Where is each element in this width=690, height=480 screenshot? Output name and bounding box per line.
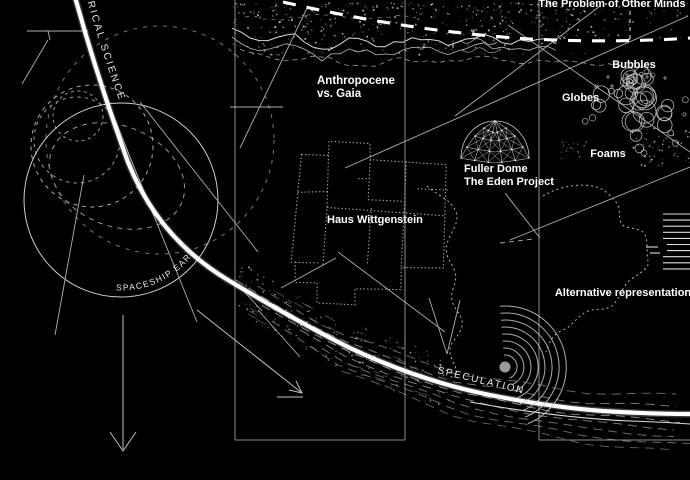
decorative-mark xyxy=(364,6,365,7)
decorative-mark xyxy=(501,151,516,160)
decorative-mark xyxy=(335,324,336,325)
decorative-mark xyxy=(682,97,688,103)
decorative-mark xyxy=(251,281,252,282)
decorative-mark xyxy=(427,5,428,6)
decorative-mark xyxy=(499,49,501,51)
decorative-mark xyxy=(487,11,488,12)
decorative-mark xyxy=(568,144,569,145)
decorative-mark xyxy=(362,31,363,32)
decorative-mark xyxy=(467,147,523,152)
decorative-mark xyxy=(477,149,479,151)
decorative-mark xyxy=(330,25,332,27)
alternative-representation-label: Alternative representation xyxy=(555,287,690,299)
decorative-mark xyxy=(294,25,296,27)
decorative-mark xyxy=(671,29,672,30)
decorative-mark xyxy=(482,138,484,140)
decorative-mark xyxy=(269,31,270,32)
decorative-mark xyxy=(291,19,293,21)
decorative-mark xyxy=(253,11,254,12)
decorative-mark xyxy=(373,342,374,343)
decorative-mark xyxy=(288,20,289,21)
decorative-mark xyxy=(380,24,381,25)
decorative-mark xyxy=(636,138,638,140)
decorative-mark xyxy=(687,3,688,4)
decorative-mark xyxy=(628,24,629,25)
decorative-mark xyxy=(236,24,237,25)
v-line xyxy=(447,300,460,354)
decorative-mark xyxy=(557,35,559,37)
decorative-mark xyxy=(584,145,585,146)
decorative-mark xyxy=(386,385,387,386)
decorative-mark xyxy=(626,29,627,30)
decorative-mark xyxy=(632,21,634,23)
decorative-mark xyxy=(334,332,335,333)
decorative-mark xyxy=(335,18,336,19)
decorative-mark xyxy=(263,43,264,44)
decorative-mark xyxy=(489,150,491,152)
decorative-mark xyxy=(467,44,469,46)
decorative-mark xyxy=(570,147,572,149)
decorative-mark xyxy=(417,18,419,20)
foam-cluster xyxy=(582,67,688,156)
decorative-mark xyxy=(332,317,333,318)
decorative-mark xyxy=(310,21,311,22)
decorative-mark xyxy=(443,6,445,8)
decorative-mark xyxy=(530,4,531,5)
decorative-mark xyxy=(335,351,336,352)
decorative-mark xyxy=(484,17,485,18)
decorative-mark xyxy=(360,26,362,28)
decorative-mark xyxy=(419,36,420,37)
decorative-mark xyxy=(466,20,467,21)
decorative-mark xyxy=(466,8,468,10)
decorative-mark xyxy=(446,392,447,393)
decorative-mark xyxy=(400,28,401,29)
decorative-mark xyxy=(522,146,524,148)
decorative-mark xyxy=(275,292,284,297)
decorative-mark xyxy=(376,4,378,6)
decorative-mark xyxy=(658,165,660,167)
decorative-mark xyxy=(521,2,522,3)
decorative-mark xyxy=(247,282,248,283)
decorative-mark xyxy=(663,11,664,12)
decorative-mark xyxy=(566,11,567,12)
decorative-mark xyxy=(297,326,298,327)
decorative-mark xyxy=(435,9,437,11)
decorative-mark xyxy=(265,8,266,9)
decorative-mark xyxy=(326,316,335,321)
decorative-mark xyxy=(584,11,586,13)
decorative-mark xyxy=(509,33,510,34)
decorative-mark xyxy=(309,321,310,322)
decorative-mark xyxy=(522,3,524,5)
decorative-mark xyxy=(412,30,413,31)
fuller-dome-label-line2: The Eden Project xyxy=(464,176,554,188)
decorative-mark xyxy=(635,144,644,153)
decorative-mark xyxy=(526,13,527,14)
decorative-mark xyxy=(325,6,327,8)
decorative-mark xyxy=(388,9,389,10)
decorative-mark xyxy=(258,41,259,42)
decorative-mark xyxy=(388,355,389,356)
decorative-mark xyxy=(508,11,510,13)
decorative-mark xyxy=(281,32,282,33)
decorative-mark xyxy=(547,18,548,19)
decorative-mark xyxy=(445,47,447,49)
globes-label: Globes xyxy=(562,92,599,104)
decorative-mark xyxy=(368,29,369,30)
decorative-mark xyxy=(495,121,529,158)
decorative-mark xyxy=(656,105,671,120)
decorative-mark xyxy=(480,20,481,21)
decorative-mark xyxy=(525,20,526,21)
decorative-mark xyxy=(469,33,470,34)
decorative-mark xyxy=(256,321,258,323)
decorative-mark xyxy=(279,21,281,23)
decorative-mark xyxy=(260,37,261,38)
decorative-mark xyxy=(301,29,303,31)
decorative-mark xyxy=(419,13,421,15)
decorative-mark xyxy=(501,4,503,6)
tick-line xyxy=(48,31,50,40)
decorative-mark xyxy=(335,22,336,23)
decorative-mark xyxy=(376,6,378,8)
decorative-mark xyxy=(476,14,478,16)
decorative-mark xyxy=(267,327,269,329)
decorative-mark xyxy=(362,10,364,12)
decorative-mark xyxy=(493,20,494,21)
decorative-mark xyxy=(521,30,522,31)
decorative-mark xyxy=(483,138,489,151)
decorative-mark xyxy=(420,49,422,51)
decorative-mark xyxy=(493,39,495,41)
decorative-mark xyxy=(240,271,242,273)
decorative-mark xyxy=(649,145,651,147)
decorative-mark xyxy=(483,6,484,7)
decorative-mark xyxy=(274,294,276,296)
decorative-mark xyxy=(418,6,419,7)
decorative-mark xyxy=(356,366,362,368)
decorative-mark xyxy=(390,2,392,4)
dashed-connector xyxy=(500,239,534,243)
decorative-mark xyxy=(503,31,505,33)
decorative-mark xyxy=(474,7,475,8)
decorative-mark xyxy=(426,45,428,47)
decorative-mark xyxy=(501,16,503,18)
decorative-mark xyxy=(677,156,678,157)
decorative-mark xyxy=(257,320,266,325)
decorative-mark xyxy=(452,46,454,48)
decorative-mark xyxy=(366,36,368,38)
decorative-mark xyxy=(487,7,488,8)
decorative-mark xyxy=(586,141,587,142)
decorative-mark xyxy=(385,340,387,342)
decorative-mark xyxy=(439,393,440,394)
decorative-mark xyxy=(354,33,355,34)
decorative-mark xyxy=(387,7,388,8)
decorative-mark xyxy=(328,360,329,361)
decorative-mark xyxy=(488,30,489,31)
decorative-mark xyxy=(373,9,375,11)
decorative-mark xyxy=(566,150,568,152)
decorative-mark xyxy=(302,303,311,308)
decorative-mark xyxy=(374,371,379,373)
decorative-mark xyxy=(659,149,661,151)
diagonal-line xyxy=(508,25,690,152)
construction-lines xyxy=(22,6,690,357)
down-arrow xyxy=(110,315,136,451)
decorative-mark xyxy=(408,5,409,6)
decorative-mark xyxy=(592,31,594,33)
decorative-mark xyxy=(272,327,273,328)
decorative-mark xyxy=(411,368,412,369)
decorative-mark xyxy=(654,155,655,156)
decorative-mark xyxy=(683,113,686,116)
decorative-mark xyxy=(485,8,486,9)
decorative-mark xyxy=(650,160,651,161)
decorative-mark xyxy=(378,24,379,25)
decorative-mark xyxy=(573,151,574,152)
decorative-mark xyxy=(423,5,424,6)
decorative-mark xyxy=(494,26,496,28)
decorative-mark xyxy=(447,13,449,15)
leader-line xyxy=(505,193,540,238)
geodesic-dome xyxy=(460,120,530,163)
decorative-mark xyxy=(543,17,545,19)
decorative-mark xyxy=(290,8,292,10)
decorative-mark xyxy=(378,23,379,24)
decorative-mark xyxy=(352,3,353,4)
decorative-mark xyxy=(294,303,302,308)
decorative-mark xyxy=(501,130,503,132)
decorative-mark xyxy=(644,165,646,167)
decorative-mark xyxy=(442,22,443,23)
decorative-mark xyxy=(330,27,331,28)
decorative-mark xyxy=(245,304,246,305)
decorative-mark xyxy=(286,301,288,303)
decorative-mark xyxy=(498,139,500,141)
decorative-mark xyxy=(685,130,687,132)
decorative-mark xyxy=(561,26,563,28)
decorative-mark xyxy=(350,3,351,4)
decorative-mark xyxy=(680,37,681,38)
decorative-mark xyxy=(687,156,688,157)
decorative-mark xyxy=(651,13,652,14)
anthropocene-label-line1: Anthropocene xyxy=(317,75,395,87)
decorative-mark xyxy=(313,5,314,6)
decorative-mark xyxy=(417,4,419,6)
decorative-mark xyxy=(658,106,672,120)
decorative-mark xyxy=(490,19,491,20)
decorative-mark xyxy=(578,152,579,153)
decorative-mark xyxy=(241,271,242,272)
decorative-mark xyxy=(492,131,494,133)
decorative-mark xyxy=(499,23,501,25)
decorative-mark xyxy=(244,4,246,6)
decorative-mark xyxy=(478,149,488,162)
decorative-mark xyxy=(390,22,391,23)
decorative-mark xyxy=(553,30,554,31)
decorative-mark xyxy=(499,130,502,140)
decorative-mark xyxy=(649,156,650,157)
decorative-mark xyxy=(475,7,476,8)
decorative-mark xyxy=(452,40,454,42)
decorative-mark xyxy=(685,161,686,162)
decorative-mark xyxy=(481,25,483,27)
decorative-mark xyxy=(466,24,468,26)
decorative-mark xyxy=(276,54,278,56)
decorative-mark xyxy=(542,17,543,18)
decorative-mark xyxy=(377,26,378,27)
decorative-mark xyxy=(506,138,508,140)
decorative-mark xyxy=(238,11,239,12)
diagonal-line xyxy=(240,6,308,148)
decorative-mark xyxy=(338,8,339,9)
decorative-mark xyxy=(448,3,449,4)
decorative-mark xyxy=(263,276,265,278)
decorative-mark xyxy=(412,8,414,10)
decorative-mark xyxy=(323,29,324,30)
decorative-mark xyxy=(590,26,592,28)
decorative-mark xyxy=(661,150,663,152)
decorative-mark xyxy=(668,146,670,148)
dotted-coastline xyxy=(543,185,648,352)
decorative-mark xyxy=(332,44,333,45)
decorative-mark xyxy=(626,74,628,76)
decorative-mark xyxy=(579,13,581,15)
decorative-mark xyxy=(238,45,239,46)
decorative-mark xyxy=(407,29,408,30)
decorative-mark xyxy=(430,400,432,402)
decorative-mark xyxy=(320,30,322,32)
decorative-mark xyxy=(561,152,562,153)
decorative-mark xyxy=(540,26,542,28)
decorative-mark xyxy=(659,37,661,39)
decorative-mark xyxy=(569,24,570,25)
decorative-mark xyxy=(604,28,605,29)
decorative-mark xyxy=(421,13,422,14)
decorative-mark xyxy=(654,141,656,143)
decorative-mark xyxy=(677,15,678,16)
decorative-mark xyxy=(315,318,316,319)
decorative-mark xyxy=(423,36,424,37)
decorative-mark xyxy=(410,352,412,354)
decorative-mark xyxy=(240,3,242,5)
decorative-mark xyxy=(489,151,501,162)
decorative-mark xyxy=(233,6,234,7)
decorative-mark xyxy=(389,338,390,339)
tick-line xyxy=(22,40,48,84)
decorative-mark xyxy=(449,14,450,15)
decorative-mark xyxy=(306,346,307,347)
decorative-mark xyxy=(490,16,492,18)
decorative-mark xyxy=(447,33,449,35)
decorative-mark xyxy=(646,17,647,18)
decorative-mark xyxy=(644,138,645,139)
decorative-mark xyxy=(500,26,501,27)
decorative-mark xyxy=(321,27,323,29)
dashed-circle xyxy=(53,91,103,141)
decorative-mark xyxy=(662,159,663,160)
decorative-mark xyxy=(599,37,600,38)
decorative-mark xyxy=(365,335,366,336)
decorative-mark xyxy=(508,40,509,41)
decorative-mark xyxy=(658,146,659,147)
decorative-mark xyxy=(251,269,253,271)
decorative-mark xyxy=(577,29,579,31)
decorative-mark xyxy=(650,23,651,24)
decorative-mark xyxy=(571,53,572,54)
decorative-mark xyxy=(542,23,544,25)
decorative-mark xyxy=(259,17,261,19)
decorative-mark xyxy=(262,325,263,326)
decorative-mark xyxy=(315,42,317,44)
decorative-mark xyxy=(399,374,400,375)
decorative-mark xyxy=(238,13,239,14)
decorative-mark xyxy=(451,48,453,50)
decorative-mark xyxy=(250,287,251,288)
decorative-mark xyxy=(452,44,454,46)
foams-label: Foams xyxy=(590,148,625,160)
decorative-mark xyxy=(353,332,354,333)
decorative-mark xyxy=(440,360,441,361)
decorative-mark xyxy=(488,151,500,162)
decorative-mark xyxy=(504,44,506,46)
decorative-mark xyxy=(522,53,523,54)
decorative-mark xyxy=(535,17,537,19)
decorative-mark xyxy=(289,302,291,304)
diagonal-line xyxy=(281,258,336,288)
decorative-mark xyxy=(496,131,498,133)
decorative-mark xyxy=(304,15,306,17)
decorative-mark xyxy=(269,325,270,326)
decorative-mark xyxy=(274,319,275,320)
problem-of-other-minds-label: The Problem of Other Minds xyxy=(538,0,685,10)
decorative-mark xyxy=(511,149,513,151)
decorative-mark xyxy=(365,328,367,330)
decorative-mark xyxy=(400,5,402,7)
decorative-mark xyxy=(253,12,255,14)
decorative-mark xyxy=(304,38,306,40)
decorative-mark xyxy=(620,13,622,15)
decorative-mark xyxy=(325,23,327,25)
decorative-mark xyxy=(287,325,289,327)
decorative-mark xyxy=(449,379,450,380)
decorative-mark xyxy=(310,319,319,324)
decorative-mark xyxy=(320,317,321,318)
decorative-mark xyxy=(372,6,374,8)
decorative-mark xyxy=(394,357,402,360)
decorative-mark xyxy=(577,18,578,19)
decorative-mark xyxy=(258,46,259,47)
decorative-mark xyxy=(341,10,342,11)
decorative-mark xyxy=(493,26,494,27)
decorative-mark xyxy=(232,37,556,61)
decorative-mark xyxy=(578,19,580,21)
decorative-mark xyxy=(493,9,495,11)
decorative-mark xyxy=(307,52,309,54)
decorative-mark xyxy=(319,44,320,45)
bubbles-label: Bubbles xyxy=(612,59,655,71)
decorative-mark xyxy=(252,311,254,313)
decorative-mark xyxy=(520,9,522,11)
decorative-mark xyxy=(515,160,517,162)
decorative-mark xyxy=(257,274,259,276)
decorative-mark xyxy=(472,17,473,18)
decorative-mark xyxy=(352,34,353,35)
decorative-mark xyxy=(499,12,501,14)
decorative-mark xyxy=(506,33,508,35)
